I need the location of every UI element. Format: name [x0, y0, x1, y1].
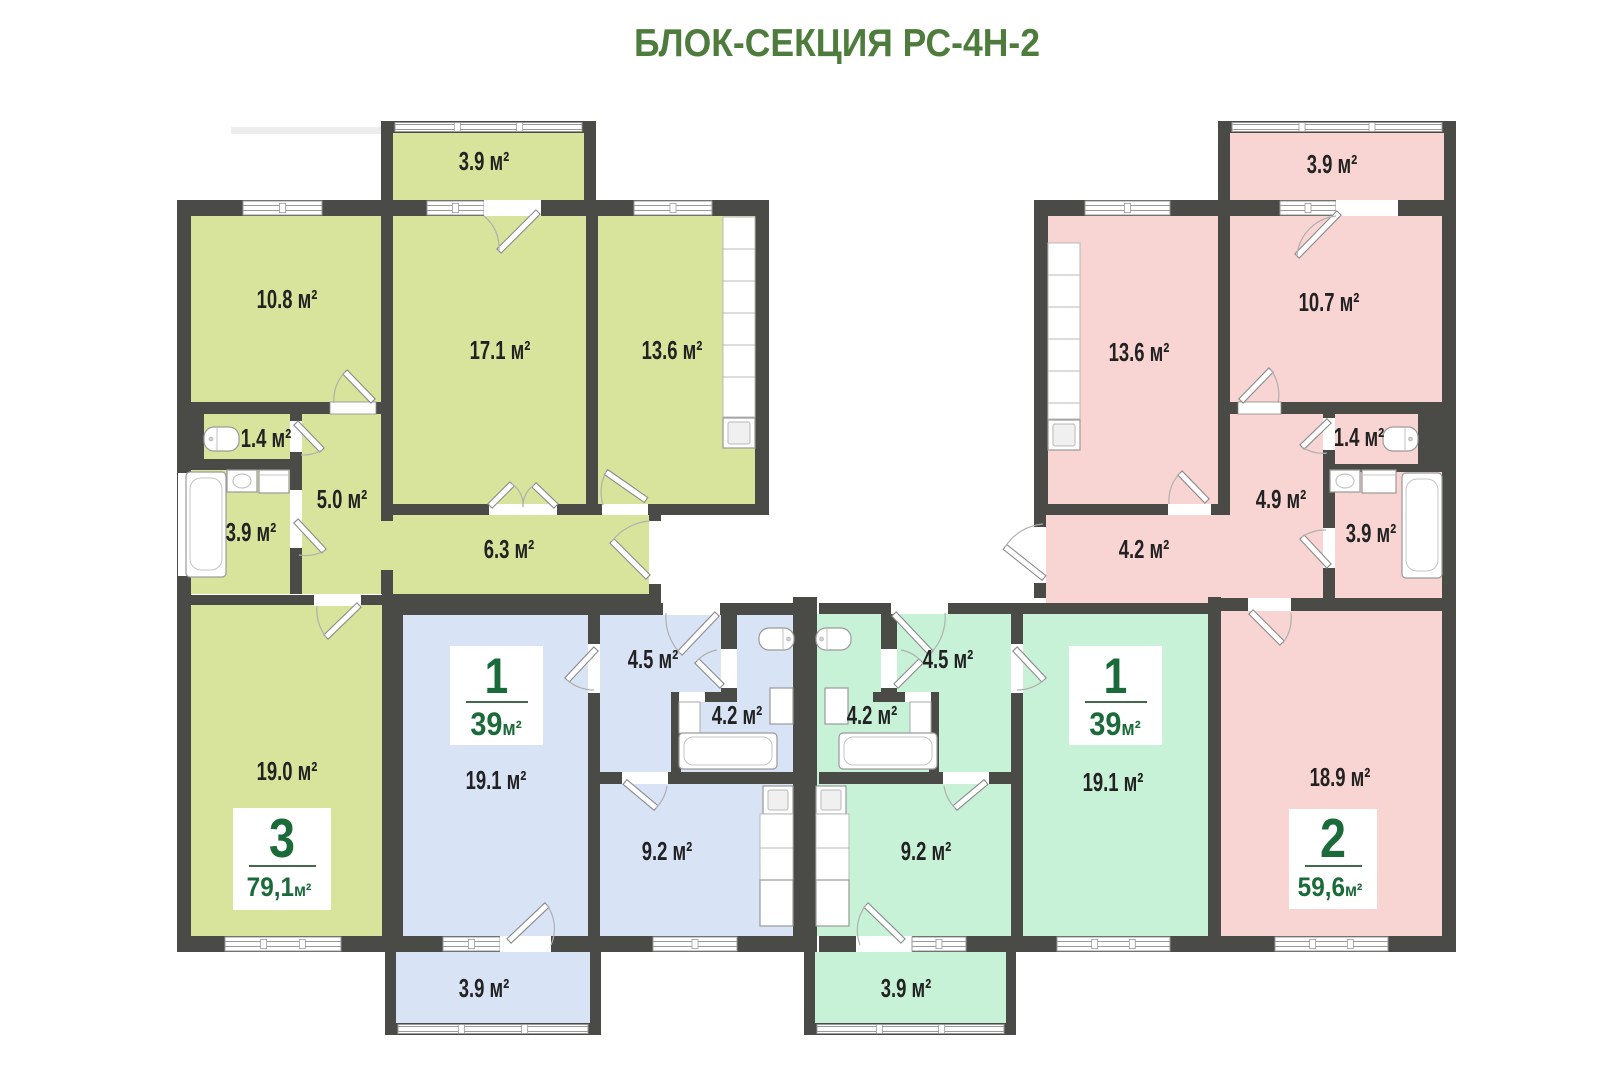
svg-text:3.9 м²: 3.9 м²: [881, 974, 932, 1003]
svg-text:3.9 м²: 3.9 м²: [459, 974, 510, 1003]
svg-text:10.8 м²: 10.8 м²: [257, 285, 318, 314]
svg-text:1: 1: [485, 648, 509, 704]
svg-text:4.2 м²: 4.2 м²: [1119, 535, 1170, 564]
svg-text:19.0 м²: 19.0 м²: [257, 757, 318, 786]
svg-text:4.2 м²: 4.2 м²: [712, 701, 763, 730]
svg-text:19.1 м²: 19.1 м²: [466, 766, 527, 795]
svg-text:5.0 м²: 5.0 м²: [317, 485, 368, 514]
svg-text:3.9 м²: 3.9 м²: [226, 518, 277, 547]
svg-text:4.2 м²: 4.2 м²: [847, 701, 898, 730]
svg-text:4.5 м²: 4.5 м²: [628, 645, 679, 674]
svg-text:БЛОК-СЕКЦИЯ РС-4Н-2: БЛОК-СЕКЦИЯ РС-4Н-2: [634, 22, 1040, 65]
svg-text:10.7 м²: 10.7 м²: [1299, 288, 1360, 317]
svg-text:4.5 м²: 4.5 м²: [923, 645, 974, 674]
svg-text:9.2 м²: 9.2 м²: [901, 837, 952, 866]
svg-text:18.9 м²: 18.9 м²: [1310, 763, 1371, 792]
svg-text:1.4 м²: 1.4 м²: [241, 424, 292, 453]
svg-text:9.2 м²: 9.2 м²: [642, 837, 693, 866]
svg-text:13.6 м²: 13.6 м²: [1109, 338, 1170, 367]
svg-text:1.4 м²: 1.4 м²: [1334, 423, 1385, 452]
svg-text:1: 1: [1104, 648, 1128, 704]
svg-text:13.6 м²: 13.6 м²: [642, 336, 703, 365]
svg-text:3.9 м²: 3.9 м²: [459, 147, 510, 176]
svg-text:19.1 м²: 19.1 м²: [1083, 768, 1144, 797]
svg-text:3.9 м²: 3.9 м²: [1307, 150, 1358, 179]
svg-text:3.9 м²: 3.9 м²: [1346, 519, 1397, 548]
svg-text:2: 2: [1320, 807, 1346, 868]
svg-text:17.1 м²: 17.1 м²: [470, 336, 531, 365]
svg-text:3: 3: [269, 807, 295, 868]
svg-text:4.9 м²: 4.9 м²: [1256, 485, 1307, 514]
svg-text:6.3 м²: 6.3 м²: [484, 535, 535, 564]
